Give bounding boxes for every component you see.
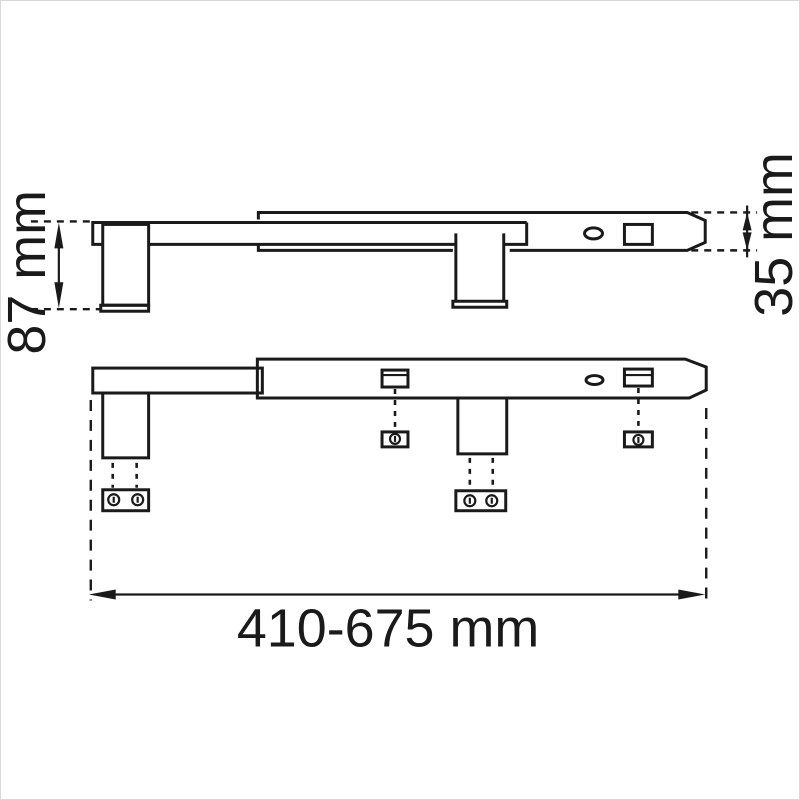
wall-clip-2 xyxy=(624,369,652,447)
bottom-view: 410-675 mm xyxy=(89,359,706,658)
middle-leg-foot xyxy=(453,301,507,307)
inner-bar xyxy=(93,368,263,393)
technical-drawing-page: 87 mm 35 mm xyxy=(0,0,800,800)
wall-clip-1 xyxy=(382,370,408,447)
side-view: 87 mm 35 mm xyxy=(1,152,799,355)
arrow-left xyxy=(89,590,116,600)
dimension-bracket-height: 87 mm xyxy=(1,190,101,355)
left-mounting-leg xyxy=(103,393,149,511)
left-leg-foot xyxy=(101,305,149,311)
square-hole xyxy=(624,224,652,244)
arrow-right xyxy=(678,590,705,600)
dimension-overall-length: 410-675 mm xyxy=(89,400,706,658)
middle-mounting-leg xyxy=(456,398,507,511)
dimension-label-87mm: 87 mm xyxy=(1,190,57,355)
dimension-label-length: 410-675 mm xyxy=(237,598,539,658)
screw-plate-one-hole xyxy=(624,432,652,447)
screw-plate-one-hole xyxy=(382,432,408,447)
dimension-label-35mm: 35 mm xyxy=(744,152,799,317)
screw-plate-two-holes xyxy=(103,490,149,511)
dimension-tube-height: 35 mm xyxy=(691,152,799,317)
screw-plate-two-holes xyxy=(456,491,506,511)
left-mounting-leg xyxy=(101,224,149,311)
middle-mounting-leg xyxy=(453,233,507,307)
oval-hole xyxy=(585,228,603,239)
oval-hole xyxy=(586,376,603,385)
telescopic-rail-drawing: 87 mm 35 mm xyxy=(1,1,799,799)
inner-bar xyxy=(93,222,527,244)
